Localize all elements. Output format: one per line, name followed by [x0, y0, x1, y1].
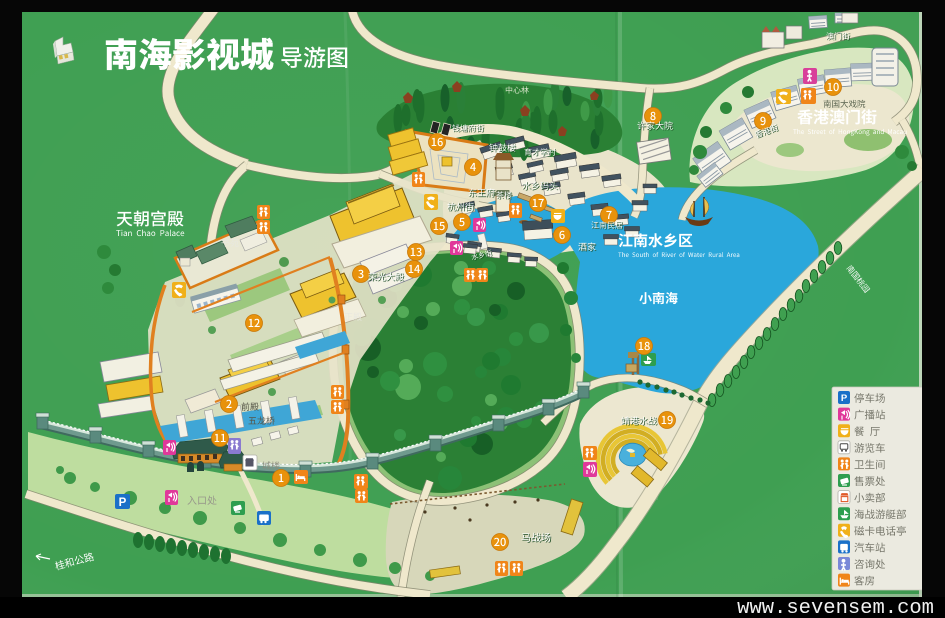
svg-text:P: P — [841, 393, 848, 404]
svg-text:www.sevensem.com: www.sevensem.com — [737, 597, 934, 618]
svg-text:P: P — [119, 497, 127, 509]
